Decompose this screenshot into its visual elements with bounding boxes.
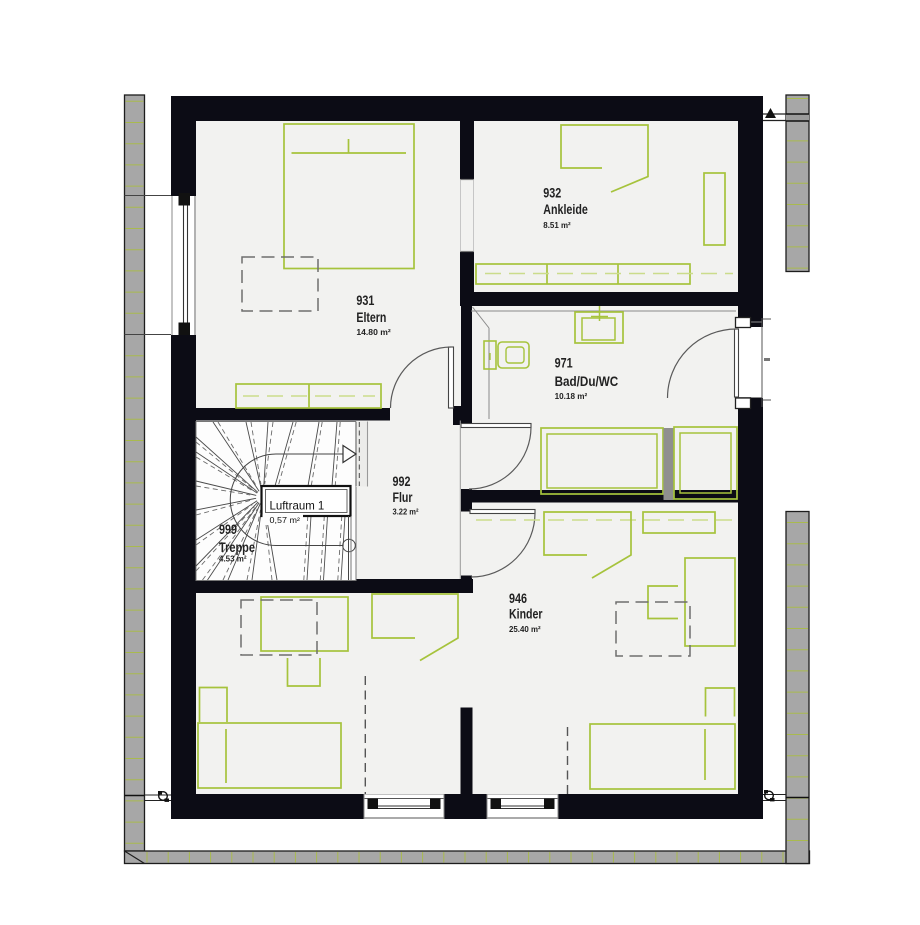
svg-text:8.51 m²: 8.51 m² — [543, 221, 571, 230]
svg-text:946: 946 — [509, 591, 527, 606]
svg-text:Ankleide: Ankleide — [543, 202, 588, 217]
svg-text:25.40 m²: 25.40 m² — [509, 625, 541, 634]
svg-text:Flur: Flur — [393, 490, 414, 505]
svg-text:999: 999 — [219, 522, 237, 537]
svg-text:Eltern: Eltern — [356, 310, 386, 325]
svg-text:971: 971 — [555, 355, 573, 370]
svg-text:14.80 m²: 14.80 m² — [356, 328, 391, 337]
svg-text:Treppe: Treppe — [219, 540, 255, 555]
svg-text:3.22 m²: 3.22 m² — [393, 508, 419, 517]
svg-text:0,57 m²: 0,57 m² — [270, 516, 301, 525]
svg-text:4.53 m²: 4.53 m² — [219, 555, 247, 564]
svg-text:932: 932 — [543, 186, 561, 201]
svg-text:992: 992 — [393, 474, 411, 489]
svg-text:Luftraum 1: Luftraum 1 — [270, 499, 325, 512]
svg-text:10.18 m²: 10.18 m² — [555, 392, 588, 401]
svg-text:Bad/Du/WC: Bad/Du/WC — [555, 374, 619, 389]
svg-text:Kinder: Kinder — [509, 607, 543, 622]
svg-text:931: 931 — [356, 293, 374, 308]
